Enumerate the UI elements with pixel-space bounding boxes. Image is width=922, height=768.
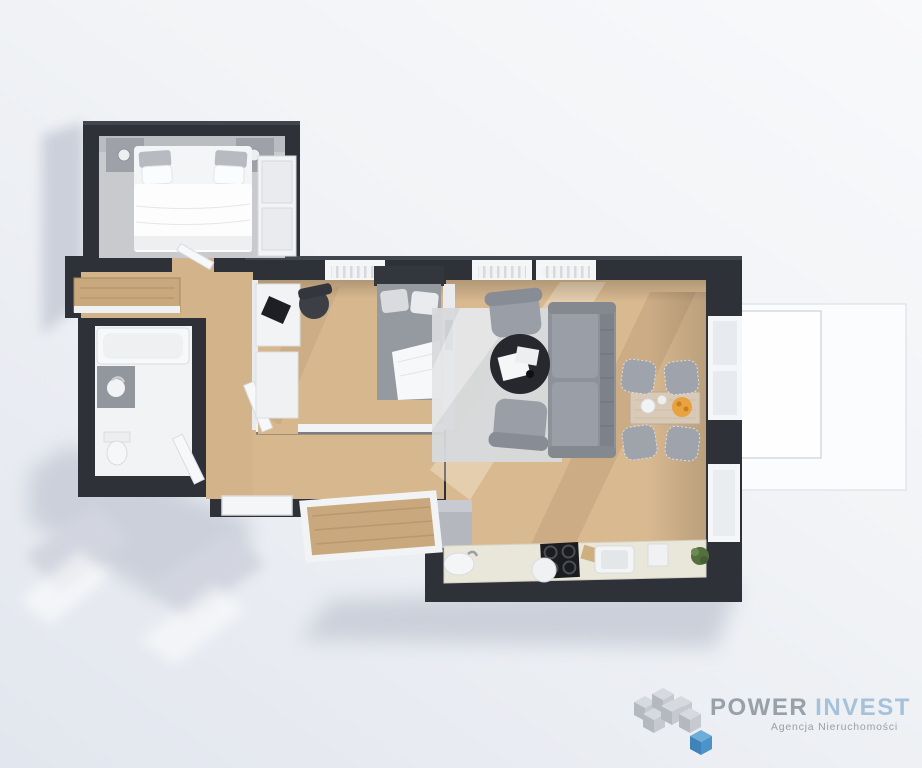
kitchen-appliance (648, 544, 668, 566)
table-lamp-left (118, 149, 130, 161)
fruit-bowl (672, 397, 692, 417)
console-cabinet (74, 278, 180, 313)
brand-name: POWERINVEST (710, 694, 911, 721)
floorplan-render: POWERINVEST Agencja Nieruchomości (0, 0, 922, 768)
kitchen-sink-right (595, 546, 634, 573)
armchair-bottom (488, 397, 552, 451)
bathtub (97, 328, 189, 364)
double-bed (134, 146, 252, 252)
coffee-table (490, 334, 550, 394)
plate-small (658, 396, 667, 405)
terrace (736, 304, 906, 490)
round-tray (532, 558, 556, 582)
lower-corridor-floor (253, 430, 444, 499)
wardrobe (258, 156, 296, 256)
living-window-left (472, 260, 532, 280)
brand-logo: POWERINVEST Agencja Nieruchomości (634, 688, 911, 755)
washbasin (97, 366, 135, 408)
armchair-top (484, 287, 546, 339)
balcony-door-right (708, 464, 740, 542)
kitchen-plant (691, 547, 709, 565)
living-room (432, 287, 616, 462)
right-wall-window (708, 316, 742, 420)
brand-tagline: Agencja Nieruchomości (771, 721, 898, 733)
plate (641, 399, 655, 413)
real-estate-render-page: POWERINVEST Agencja Nieruchomości (0, 0, 922, 768)
logo-cubes-icon (634, 688, 712, 755)
entrance-door (222, 496, 292, 515)
sofa (548, 302, 616, 458)
living-window-right (536, 260, 596, 280)
corridor-floor (206, 318, 253, 499)
small-balcony (303, 494, 439, 559)
hallway (74, 278, 180, 313)
office-cabinet (256, 352, 298, 418)
logo-blue-cube-icon (690, 730, 712, 755)
